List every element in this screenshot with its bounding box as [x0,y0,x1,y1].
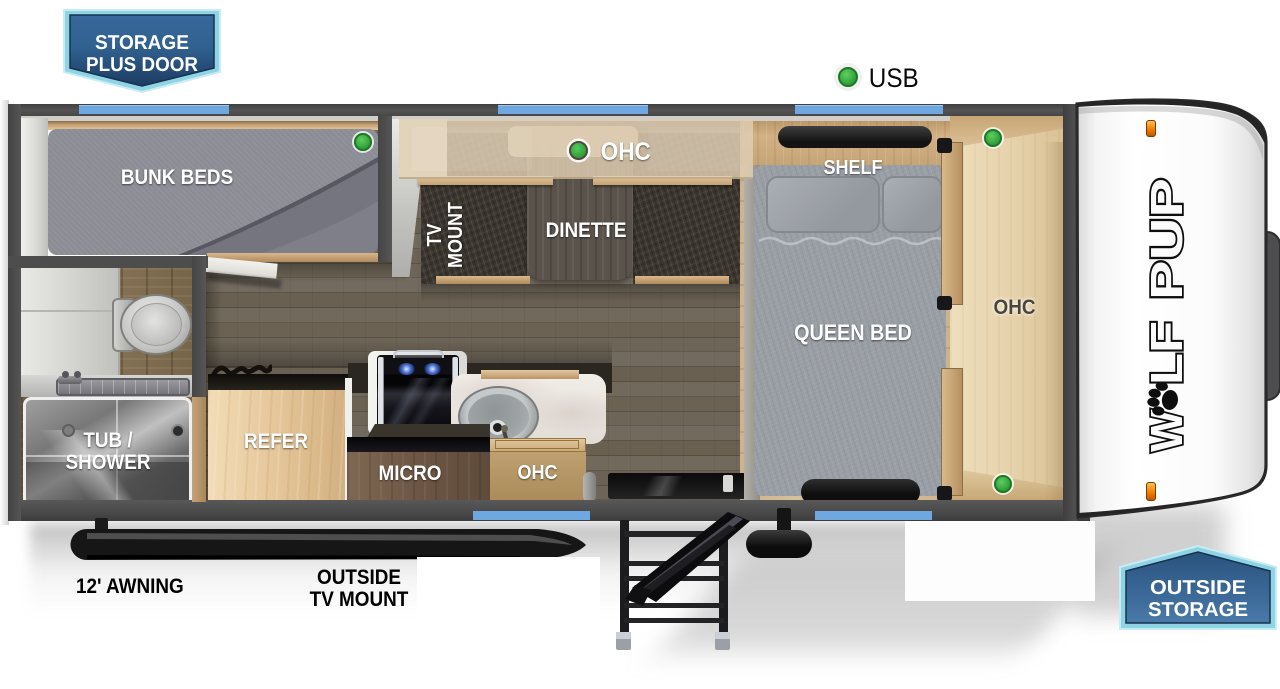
svg-text:STORAGE: STORAGE [95,32,189,54]
svg-text:PLUS DOOR: PLUS DOOR [86,54,199,76]
svg-text:STORAGE: STORAGE [1148,599,1248,621]
svg-text:PUP: PUP [1144,178,1188,300]
svg-text:OUTSIDE: OUTSIDE [1150,577,1246,599]
svg-text:LF: LF [1144,321,1188,385]
svg-text:W: W [1144,409,1188,452]
